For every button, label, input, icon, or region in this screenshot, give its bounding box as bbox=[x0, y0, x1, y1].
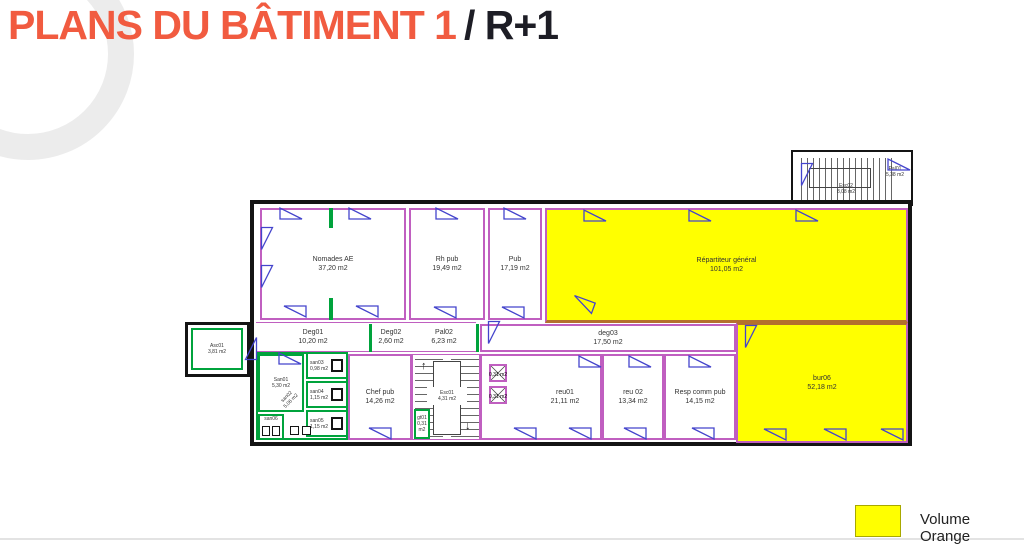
room-area: 14,26 m2 bbox=[365, 397, 394, 406]
page-title-suffix: / R+1 bbox=[464, 2, 558, 48]
room-area: 5,38 m2 bbox=[886, 172, 904, 178]
door-swing-icon bbox=[568, 427, 592, 440]
room-name: Pub bbox=[509, 255, 521, 264]
room-area: 17,19 m2 bbox=[500, 264, 529, 273]
green-partition bbox=[476, 324, 479, 352]
room-name: Deg01 bbox=[303, 328, 324, 337]
toilet-fixture bbox=[331, 388, 343, 401]
door-swing-icon bbox=[368, 427, 392, 440]
door-swing-icon bbox=[763, 428, 787, 441]
room-name: bur06 bbox=[813, 374, 831, 383]
room-area: 19,49 m2 bbox=[432, 264, 461, 273]
room-area: 1,15 m2 bbox=[310, 395, 328, 401]
corridor-deg03: deg03 17,50 m2 bbox=[480, 324, 736, 352]
door-swing-icon bbox=[283, 305, 307, 318]
door-swing-icon bbox=[261, 227, 274, 251]
door-swing-icon bbox=[488, 321, 501, 345]
room-name: Deg02 bbox=[381, 328, 402, 337]
room-area: 8,08 m2 bbox=[837, 189, 855, 195]
sink-fixture bbox=[290, 426, 299, 435]
door-swing-icon bbox=[261, 265, 274, 289]
room-san05: san05 1,15 m2 bbox=[306, 410, 348, 437]
room-area: 5,30 m2 bbox=[272, 383, 290, 389]
door-swing-icon bbox=[503, 207, 527, 220]
toilet-fixture bbox=[331, 417, 343, 430]
floor-plan: Pal01 5,38 m2 Esc02 8,08 m2 Asc01 3,81 m… bbox=[183, 148, 917, 450]
door-swing-icon bbox=[795, 209, 819, 222]
room-name: reu01 bbox=[556, 388, 574, 397]
stair-direction-down-icon: ↓ bbox=[465, 421, 471, 432]
room-area: 14,15 m2 bbox=[685, 397, 714, 406]
room-rh-pub: Rh pub 19,49 m2 bbox=[409, 208, 485, 320]
room-name: Nomades AE bbox=[313, 255, 354, 264]
door-swing-icon bbox=[628, 355, 652, 368]
sink-fixture bbox=[302, 426, 311, 435]
room-bur06: bur06 52,18 m2 bbox=[736, 322, 908, 443]
room-name: deg03 bbox=[598, 329, 617, 338]
room-name: Répartiteur général bbox=[697, 256, 757, 265]
door-swing-icon bbox=[583, 209, 607, 222]
door-swing-icon bbox=[278, 352, 302, 365]
stair-direction-up-icon: ↑ bbox=[421, 361, 427, 372]
door-swing-icon bbox=[435, 207, 459, 220]
room-area: 0,98 m2 bbox=[310, 366, 328, 372]
shaft-gt01: gt01 0,31 m2 bbox=[414, 409, 430, 439]
room-name: Rh pub bbox=[436, 255, 459, 264]
door-swing-icon bbox=[279, 207, 303, 220]
door-swing-icon bbox=[745, 325, 758, 349]
door-swing-icon bbox=[623, 427, 647, 440]
page-title-main: PLANS DU BÂTIMENT 1 bbox=[8, 2, 456, 48]
room-area: 52,18 m2 bbox=[807, 383, 836, 392]
room-name: san06 bbox=[264, 416, 278, 422]
toilet-fixture bbox=[331, 359, 343, 372]
legend-volume-orange-label: Volume Orange bbox=[920, 511, 1024, 545]
sink-fixture bbox=[262, 426, 270, 436]
room-area: 13,34 m2 bbox=[618, 397, 647, 406]
room-area: 0,31 m2 bbox=[416, 421, 428, 433]
room-area: 6,23 m2 bbox=[431, 337, 456, 346]
door-swing-icon bbox=[801, 163, 814, 187]
room-esc02: Esc02 8,08 m2 bbox=[829, 180, 863, 198]
door-swing-icon bbox=[823, 428, 847, 441]
room-area: 101,05 m2 bbox=[710, 265, 743, 274]
room-area: 1,15 m2 bbox=[310, 424, 328, 430]
room-name: Resp comm pub bbox=[675, 388, 726, 397]
room-name: reu 02 bbox=[623, 388, 643, 397]
room-area: 4,31 m2 bbox=[438, 396, 456, 402]
stairwell-esc01: ↑ ↓ Esc01 4,31 m2 gt01 0,31 m2 bbox=[412, 354, 480, 440]
room-repartiteur-general: Répartiteur général 101,05 m2 bbox=[545, 208, 908, 323]
green-partition bbox=[329, 208, 333, 228]
room-san04: san04 1,15 m2 bbox=[306, 381, 348, 408]
door-swing-icon bbox=[578, 355, 602, 368]
duct-area: 0,31 m2 bbox=[489, 372, 511, 378]
room-asc01: Asc01 3,81 m2 bbox=[191, 328, 243, 370]
room-area: 37,20 m2 bbox=[318, 264, 347, 273]
door-swing-icon bbox=[887, 158, 911, 171]
corridor-pal02: Pal02 6,23 m2 bbox=[412, 322, 476, 352]
door-swing-icon bbox=[880, 428, 904, 441]
room-san06: san06 bbox=[258, 414, 284, 440]
room-area: 2,60 m2 bbox=[378, 337, 403, 346]
door-swing-icon bbox=[688, 355, 712, 368]
room-name: Chef pub bbox=[366, 388, 394, 397]
green-partition bbox=[329, 298, 333, 320]
duct-shaft: 0,31 m2 bbox=[489, 364, 507, 382]
door-swing-icon bbox=[688, 209, 712, 222]
bottom-divider bbox=[0, 538, 1024, 540]
duct-shaft: 0,31 m2 bbox=[489, 386, 507, 404]
room-esc01: Esc01 4,31 m2 bbox=[427, 387, 467, 405]
door-swing-icon bbox=[691, 427, 715, 440]
green-partition bbox=[369, 324, 372, 352]
door-swing-icon bbox=[513, 427, 537, 440]
room-area: 10,20 m2 bbox=[298, 337, 327, 346]
room-name: Pal02 bbox=[435, 328, 453, 337]
room-nomades: Nomades AE 37,20 m2 bbox=[260, 208, 406, 320]
legend-volume-orange-swatch bbox=[855, 505, 901, 537]
door-swing-icon bbox=[433, 306, 457, 319]
door-swing-icon bbox=[245, 337, 258, 361]
page-title: PLANS DU BÂTIMENT 1/ R+1 bbox=[8, 2, 558, 49]
room-area: 21,11 m2 bbox=[551, 397, 580, 406]
corridor-deg02: Deg02 2,60 m2 bbox=[370, 322, 412, 352]
door-swing-icon bbox=[348, 207, 372, 220]
door-swing-icon bbox=[501, 306, 525, 319]
room-area: 17,50 m2 bbox=[593, 338, 622, 347]
duct-area: 0,31 m2 bbox=[489, 394, 511, 400]
room-pub: Pub 17,19 m2 bbox=[488, 208, 542, 320]
stair-block-esc02: Pal01 5,38 m2 Esc02 8,08 m2 bbox=[791, 150, 913, 206]
door-swing-icon bbox=[355, 305, 379, 318]
room-san03: san03 0,98 m2 bbox=[306, 352, 348, 379]
corridor-deg01: Deg01 10,20 m2 bbox=[256, 322, 370, 352]
room-area: 3,81 m2 bbox=[208, 349, 226, 355]
sink-fixture bbox=[272, 426, 280, 436]
